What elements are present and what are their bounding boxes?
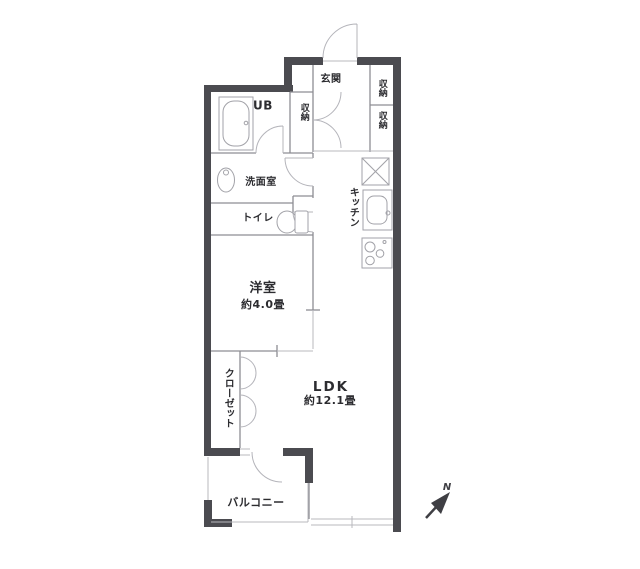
floor-plan-drawing: N [0, 0, 640, 569]
closet-folding-door-arcs [240, 357, 256, 427]
room-label-washroom: 洗面室 [245, 178, 277, 189]
stove-icon [362, 238, 392, 268]
room-label-storage-upper: 収納 [376, 79, 385, 97]
room-label-entrance: 玄関 [321, 75, 342, 86]
room-label-balcony: バルコニー [227, 497, 284, 509]
toilet-icon [277, 211, 308, 233]
bath-door-arc [256, 126, 283, 153]
walls [204, 57, 401, 532]
compass-north-label: N [443, 482, 452, 493]
room-label-kitchen: キッチン [347, 187, 358, 227]
north-compass-icon: N [426, 482, 452, 518]
room-label-unit-bath: UB [253, 100, 273, 113]
room-label-storage-lower: 収納 [376, 111, 385, 129]
entrance-door-arc [323, 24, 357, 58]
window-and-railing-lines [208, 61, 393, 528]
floor-plan: N 玄関 収納 収納 収納 UB 洗面室 トイレ キッチン 洋室 約4.0畳 ク… [0, 0, 640, 569]
room-size-ldk: 約12.1畳 [304, 395, 356, 407]
room-label-ldk: LDK [313, 380, 349, 394]
kitchen-sink-icon [363, 190, 392, 230]
balcony-door-arc [252, 452, 282, 482]
room-label-hall-storage: 収納 [298, 103, 307, 121]
refrigerator-space-icon [362, 158, 389, 185]
hall-storage-door-arcs [313, 92, 341, 148]
washbasin-icon [218, 168, 235, 192]
room-label-western-room: 洋室 [249, 282, 276, 296]
room-label-closet: クローゼット [222, 368, 233, 428]
room-size-western-room: 約4.0畳 [241, 299, 285, 311]
fixtures [218, 97, 393, 268]
room-label-toilet: トイレ [242, 214, 274, 225]
bathtub-icon [219, 97, 253, 150]
washroom-door-arc [285, 158, 313, 186]
door-swing-arcs [240, 24, 357, 482]
